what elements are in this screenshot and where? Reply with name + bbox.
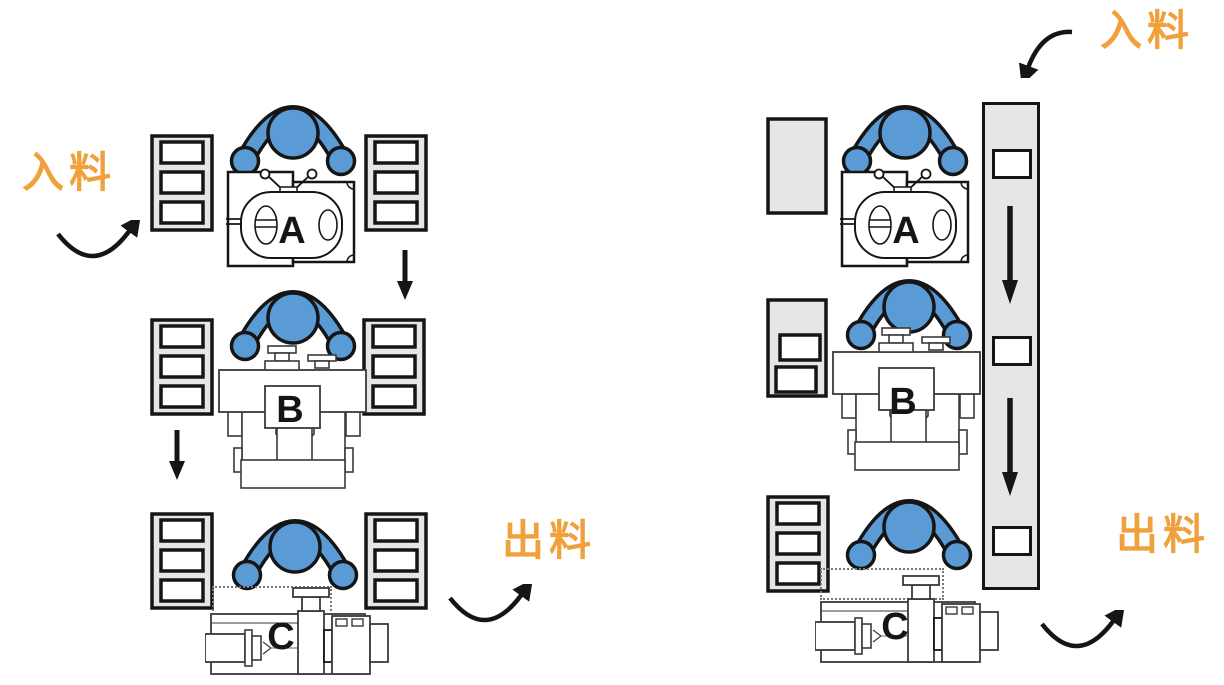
- empty-pallet-icon: [766, 117, 828, 215]
- conveyor-item: [992, 149, 1032, 179]
- machine-c-label: C: [870, 608, 920, 646]
- conveyor-down-arrow-icon: [1001, 204, 1019, 304]
- output-label: 出料: [1116, 514, 1210, 556]
- conveyor-belt: [982, 102, 1040, 590]
- input-label: 入料: [1100, 10, 1194, 52]
- diagram-canvas: 入料 A B C 出料 入料: [0, 0, 1224, 685]
- conveyor-item: [992, 336, 1032, 366]
- pallet-icon: [766, 298, 828, 398]
- machine-b-label: B: [878, 383, 928, 421]
- output-curved-arrow-icon: [1036, 610, 1126, 662]
- input-curved-arrow-icon: [1018, 26, 1078, 78]
- conveyor-down-arrow-icon: [1001, 396, 1019, 496]
- layout-right-conveyor-transfer: 入料 A B C 出料: [0, 0, 1224, 685]
- machine-a-label: A: [881, 212, 931, 250]
- conveyor-item: [992, 526, 1032, 556]
- worker-icon: [844, 494, 974, 574]
